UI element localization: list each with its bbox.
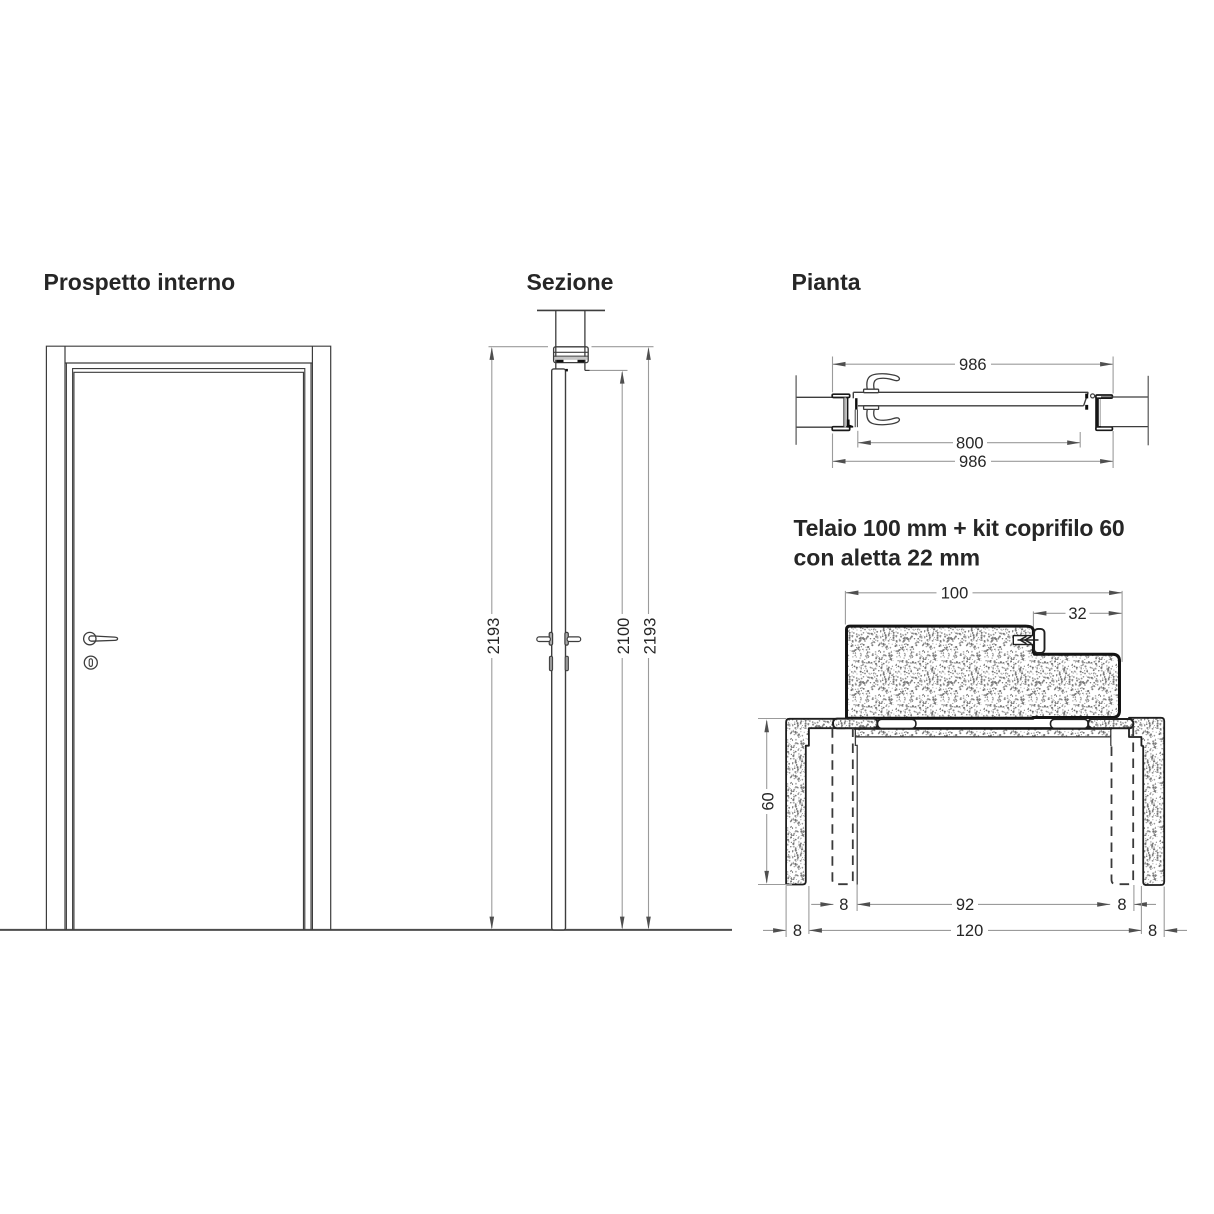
svg-text:8: 8: [793, 922, 802, 940]
svg-text:8: 8: [1117, 896, 1126, 914]
svg-text:2193: 2193: [485, 618, 503, 655]
svg-text:92: 92: [956, 896, 974, 914]
svg-text:60: 60: [760, 792, 778, 810]
svg-text:100: 100: [941, 585, 969, 603]
svg-text:8: 8: [1148, 922, 1157, 940]
svg-text:2193: 2193: [642, 618, 660, 655]
svg-text:Pianta: Pianta: [792, 269, 861, 295]
svg-text:Sezione: Sezione: [527, 269, 614, 295]
svg-text:120: 120: [956, 922, 984, 940]
svg-text:986: 986: [959, 356, 987, 374]
svg-text:Telaio 100 mm + kit coprifilo: Telaio 100 mm + kit coprifilo 60: [794, 515, 1125, 541]
svg-text:Prospetto interno: Prospetto interno: [44, 269, 236, 295]
svg-text:con aletta 22 mm: con aletta 22 mm: [794, 545, 981, 571]
svg-text:8: 8: [839, 896, 848, 914]
svg-text:32: 32: [1068, 605, 1086, 623]
svg-text:800: 800: [956, 435, 984, 453]
svg-text:2100: 2100: [615, 618, 633, 655]
svg-text:986: 986: [959, 453, 987, 471]
